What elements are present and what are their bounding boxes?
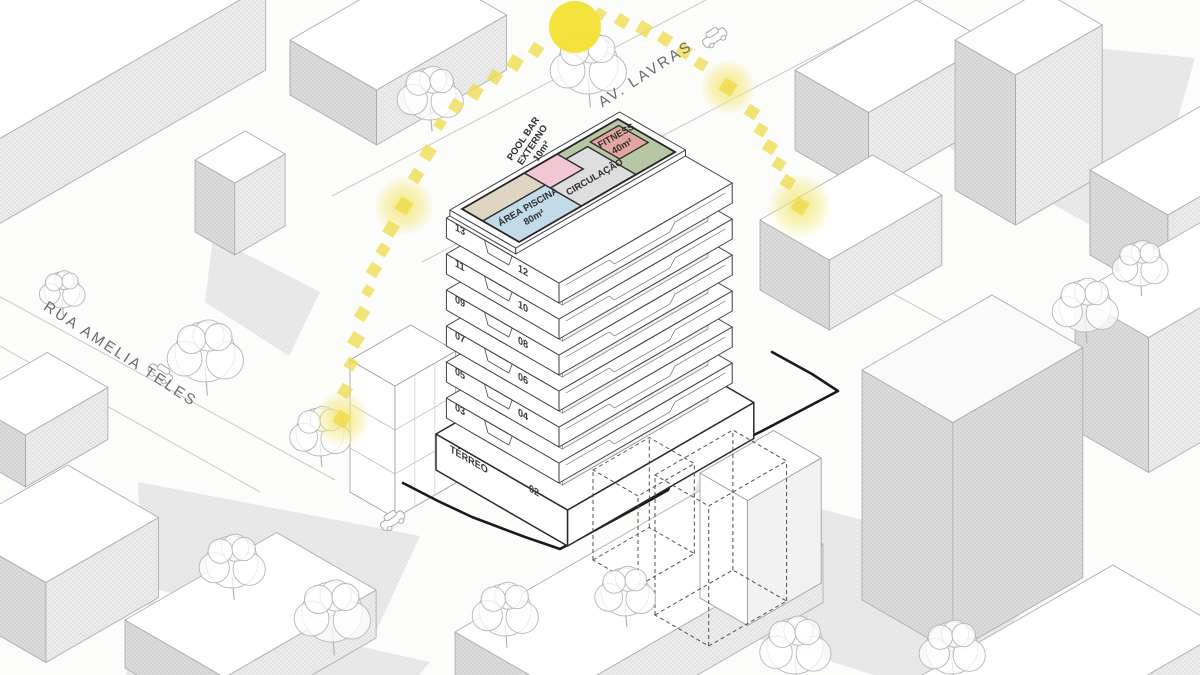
sun-icon bbox=[549, 1, 601, 53]
sun-path-marker bbox=[419, 144, 437, 162]
sun-path-marker bbox=[771, 156, 786, 171]
sun-path-marker bbox=[354, 306, 371, 323]
sun-path-marker bbox=[506, 54, 524, 72]
sun-path-marker bbox=[762, 139, 779, 156]
car bbox=[699, 23, 729, 50]
sun-path-marker bbox=[347, 331, 365, 349]
sun-path-marker bbox=[361, 284, 375, 298]
sun-path-marker bbox=[753, 122, 768, 137]
sun-path-marker bbox=[614, 13, 631, 30]
sun-path-marker bbox=[657, 31, 674, 48]
site-axonometric-diagram: AV. LAVRASRUA AMELIA TELES13111209100708… bbox=[0, 0, 1200, 675]
sun-path-marker bbox=[375, 242, 390, 257]
sun-path-marker bbox=[528, 42, 545, 59]
axonometric-scene: AV. LAVRASRUA AMELIA TELES13111209100708… bbox=[0, 0, 1200, 675]
sun-path-marker bbox=[366, 262, 383, 279]
